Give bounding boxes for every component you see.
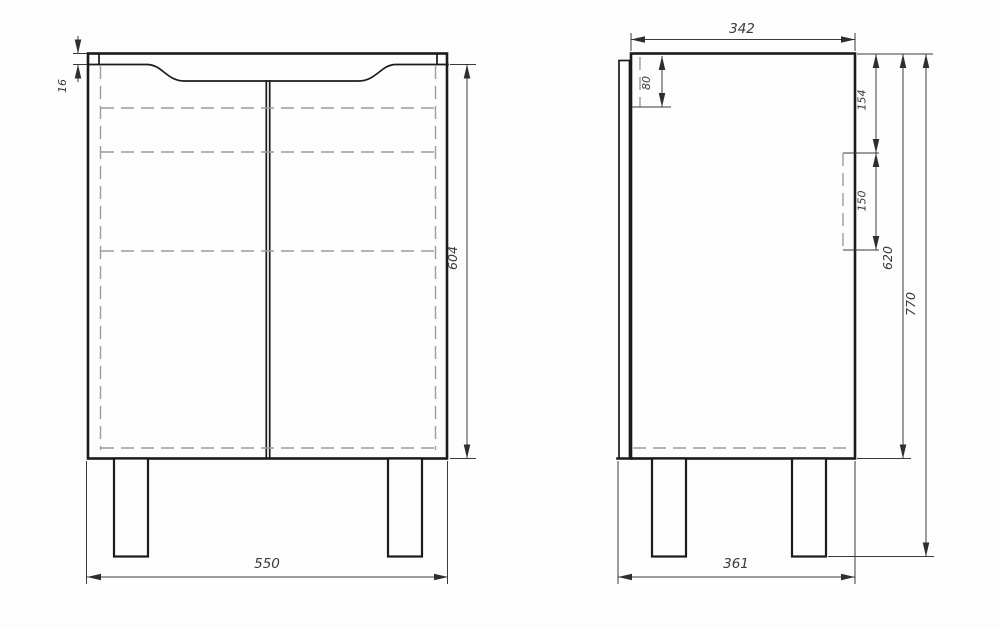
dim-label-770: 770 — [903, 292, 918, 316]
front-view: 16 604 550 — [56, 36, 476, 584]
side-view: 342 80 154 150 620 770 — [618, 21, 935, 584]
front-cabinet-outline — [88, 54, 447, 459]
dim-label-550: 550 — [254, 556, 280, 572]
dim-label-342: 342 — [729, 21, 755, 37]
side-leg-front — [652, 459, 686, 557]
dim-cutout-offset: 154 — [856, 54, 877, 153]
dim-body-height: 604 — [445, 65, 476, 459]
side-cabinet-outline — [631, 54, 855, 459]
front-leg-left — [114, 459, 148, 557]
basin-apron-curve — [99, 65, 437, 82]
dim-countertop-thickness: 16 — [56, 36, 87, 93]
drawing-sheet: 16 604 550 — [0, 0, 1000, 628]
dim-label-80: 80 — [640, 76, 653, 90]
countertop-end-cap-left — [88, 54, 99, 65]
dim-label-604: 604 — [445, 246, 460, 270]
side-leg-back — [792, 459, 826, 557]
door-divider — [266, 81, 269, 458]
dim-label-620: 620 — [880, 246, 895, 270]
dim-cabinet-height: 620 — [880, 54, 903, 459]
side-door-slab — [619, 61, 630, 459]
dim-cutout-height: 150 — [856, 153, 877, 250]
dim-overall-height: 770 — [903, 54, 926, 557]
drawing-canvas: 16 604 550 — [0, 0, 1000, 628]
front-leg-right — [388, 459, 422, 557]
dim-top-depth: 342 — [631, 21, 855, 51]
dim-label-16: 16 — [56, 79, 69, 93]
dim-sink-recess-depth: 80 — [640, 56, 662, 107]
dim-label-150: 150 — [856, 191, 869, 212]
dim-label-361: 361 — [723, 556, 749, 572]
dim-label-154: 154 — [856, 90, 869, 111]
